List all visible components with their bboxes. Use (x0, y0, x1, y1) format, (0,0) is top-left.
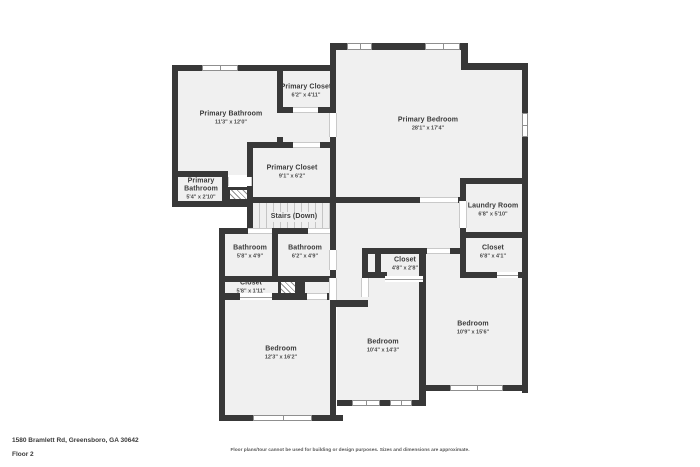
room-dimensions: 5'8" x 1'11" (237, 288, 266, 294)
room-name: Primary Closet (281, 83, 332, 91)
room-label-closet-left: Closet 5'8" x 1'11" (237, 279, 266, 294)
room-dimensions: 12'3" x 16'2" (265, 354, 297, 360)
room-dimensions: 11'3" x 12'0" (200, 119, 263, 125)
room-name: Bathroom (288, 244, 322, 252)
wall (362, 248, 466, 254)
room-dimensions: 5'4" x 2'10" (176, 194, 226, 200)
room-label-closet-hall: Closet 4'8" x 2'8" (392, 256, 418, 271)
room-label-laundry-room: Laundry Room 6'8" x 5'10" (468, 202, 519, 217)
room-dimensions: 10'9" x 15'6" (457, 329, 489, 335)
closet-opening (385, 276, 423, 282)
room-label-bedroom-middle: Bedroom 10'4" x 14'3" (367, 338, 399, 353)
door-opening (329, 250, 337, 270)
room-label-closet-right: Closet 6'8" x 4'1" (480, 244, 506, 259)
wall (272, 234, 278, 282)
wall (247, 142, 253, 233)
wall (277, 137, 283, 148)
room-label-bedroom-left: Bedroom 12'3" x 16'2" (265, 345, 297, 360)
door-opening (361, 278, 369, 297)
room-dimensions: 10'4" x 14'3" (367, 347, 399, 353)
room-dimensions: 6'8" x 5'10" (468, 211, 519, 217)
room-name: Bedroom (367, 338, 399, 346)
room-dimensions: 6'2" x 4'11" (281, 92, 332, 98)
wall (247, 142, 336, 148)
window (450, 385, 503, 391)
floor-plan-page: Primary Bathroom 11'3" x 12'0" Primary C… (0, 0, 700, 467)
door-opening (329, 113, 337, 137)
room-label-primary-bathroom: Primary Bathroom 11'3" x 12'0" (200, 110, 263, 125)
room-name: Primary Closet (267, 164, 318, 172)
door-opening (329, 278, 337, 300)
window (347, 43, 372, 50)
wall (331, 300, 368, 307)
room-dimensions: 6'2" x 4'9" (288, 253, 322, 259)
window (390, 400, 412, 406)
room-name: Closet (480, 244, 506, 252)
room-label-bathroom-left: Bathroom 5'8" x 4'9" (233, 244, 267, 259)
door-opening (293, 142, 320, 148)
door-opening (228, 177, 252, 186)
wall (330, 300, 336, 421)
floor-plan: Primary Bathroom 11'3" x 12'0" Primary C… (0, 0, 700, 420)
footer-address: 1580 Bramlett Rd, Greensboro, GA 30642 (12, 437, 139, 444)
wall (277, 65, 336, 71)
closet-opening (497, 272, 518, 278)
door-opening (293, 107, 318, 113)
room-name: Stairs (Down) (271, 213, 317, 221)
room-label-bathroom-right: Bathroom 6'2" x 4'9" (288, 244, 322, 259)
room-label-primary-bedroom: Primary Bedroom 28'1" x 17'4" (398, 116, 458, 131)
room-name: Bedroom (265, 345, 297, 353)
room-label-bedroom-right: Bedroom 10'9" x 15'6" (457, 320, 489, 335)
footer-disclaimer: Floor plans/tour cannot be used for buil… (230, 448, 469, 453)
wall (375, 254, 381, 278)
wall (172, 171, 228, 177)
wall (330, 234, 336, 250)
window (352, 400, 380, 406)
room-dimensions: 6'8" x 4'1" (480, 253, 506, 259)
room-name: Closet (237, 279, 266, 287)
room-name: Bedroom (457, 320, 489, 328)
wall (460, 178, 528, 184)
wall (172, 201, 252, 207)
door-opening (248, 228, 272, 234)
room-label-primary-closet-lower: Primary Closet 9'1" x 6'2" (267, 164, 318, 179)
room-name: Laundry Room (468, 202, 519, 210)
room-label-stairs: Stairs (Down) (268, 212, 320, 222)
window (425, 43, 460, 50)
door-opening (307, 293, 327, 300)
window (522, 113, 528, 137)
wall (330, 137, 336, 234)
room-name: Primary Bedroom (398, 116, 458, 124)
room-name: Bathroom (233, 244, 267, 252)
room-label-primary-closet-top: Primary Closet 6'2" x 4'11" (281, 83, 332, 98)
door-opening (308, 228, 330, 234)
footer-floor-label: Floor 2 (12, 451, 34, 458)
room-name: Primary Bathroom (200, 110, 263, 118)
room-dimensions: 9'1" x 6'2" (267, 173, 318, 179)
room-name: Primary Bathroom (176, 177, 226, 193)
wall (419, 248, 426, 406)
room-name: Closet (392, 256, 418, 264)
wall (460, 232, 528, 238)
window (202, 65, 238, 71)
wall (461, 63, 528, 70)
room-dimensions: 28'1" x 17'4" (398, 125, 458, 131)
door-opening (459, 201, 467, 228)
window (253, 415, 312, 421)
room-label-primary-bathroom-small: Primary Bathroom 5'4" x 2'10" (176, 177, 226, 200)
door-opening (420, 197, 458, 203)
door-opening (427, 248, 450, 254)
wall (330, 43, 336, 113)
room-dimensions: 5'8" x 4'9" (233, 253, 267, 259)
wall (362, 248, 368, 278)
room-dimensions: 4'8" x 2'8" (392, 265, 418, 271)
wall (219, 228, 225, 421)
